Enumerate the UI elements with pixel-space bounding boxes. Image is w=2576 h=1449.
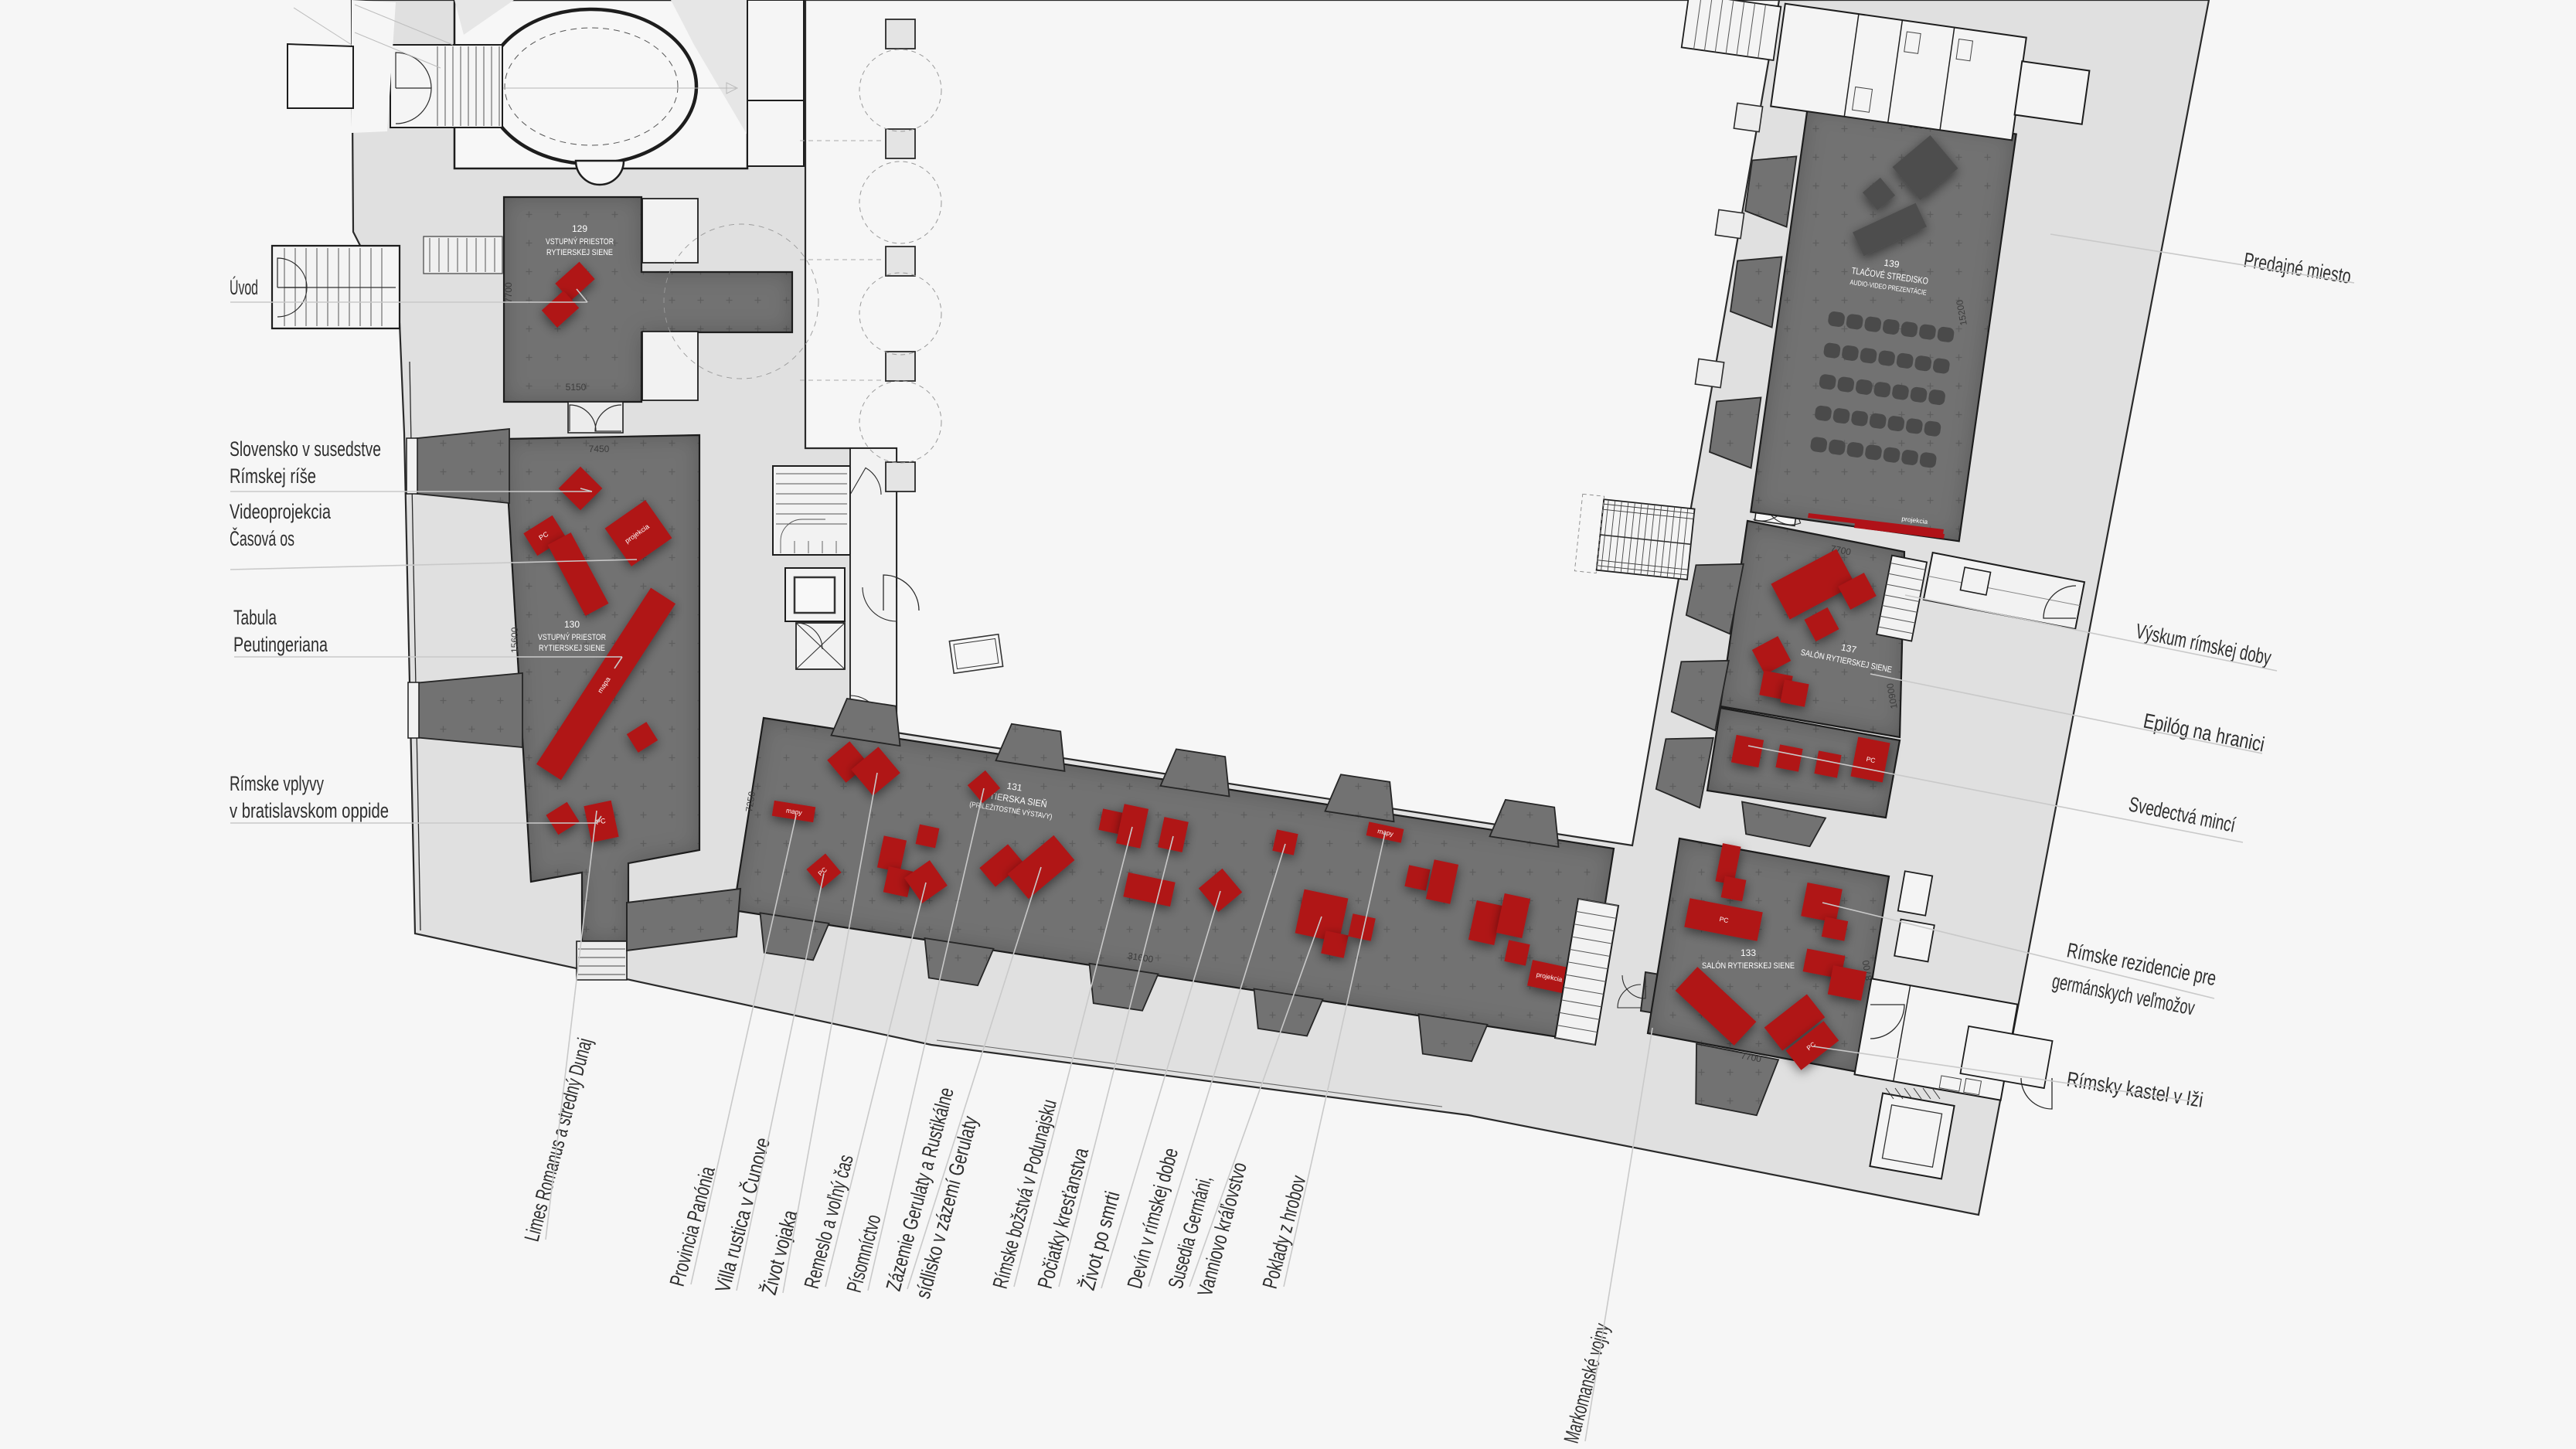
svg-text:Tabula: Tabula [233, 606, 277, 629]
svg-text:133: 133 [1741, 947, 1756, 958]
svg-text:Peutingeriana: Peutingeriana [233, 633, 328, 656]
svg-text:VSTUPNÝ PRIESTOR: VSTUPNÝ PRIESTOR [546, 236, 614, 247]
svg-text:Časová os: Časová os [230, 526, 294, 550]
svg-text:RYTIERSKEJ SIENE: RYTIERSKEJ SIENE [546, 248, 613, 257]
svg-text:v bratislavskom oppide: v bratislavskom oppide [230, 799, 389, 822]
svg-text:VSTUPNÝ PRIESTOR: VSTUPNÝ PRIESTOR [538, 632, 606, 642]
svg-text:Rímske vplyvy: Rímske vplyvy [230, 772, 324, 795]
svg-text:15600: 15600 [509, 627, 520, 653]
svg-text:129: 129 [572, 223, 587, 234]
svg-text:130: 130 [564, 619, 580, 630]
svg-text:Slovensko v susedstve: Slovensko v susedstve [230, 437, 381, 461]
svg-text:7450: 7450 [589, 444, 610, 454]
svg-text:Rímskej ríše: Rímskej ríše [230, 464, 316, 488]
svg-text:Úvod: Úvod [230, 275, 258, 299]
svg-text:139: 139 [1884, 257, 1901, 270]
svg-text:Videoprojekcia: Videoprojekcia [230, 500, 332, 523]
svg-text:7700: 7700 [503, 282, 514, 303]
svg-text:5150: 5150 [566, 382, 587, 393]
svg-text:RYTIERSKEJ SIENE: RYTIERSKEJ SIENE [539, 644, 605, 653]
svg-text:SALÓN RYTIERSKEJ SIENE: SALÓN RYTIERSKEJ SIENE [1702, 961, 1795, 971]
